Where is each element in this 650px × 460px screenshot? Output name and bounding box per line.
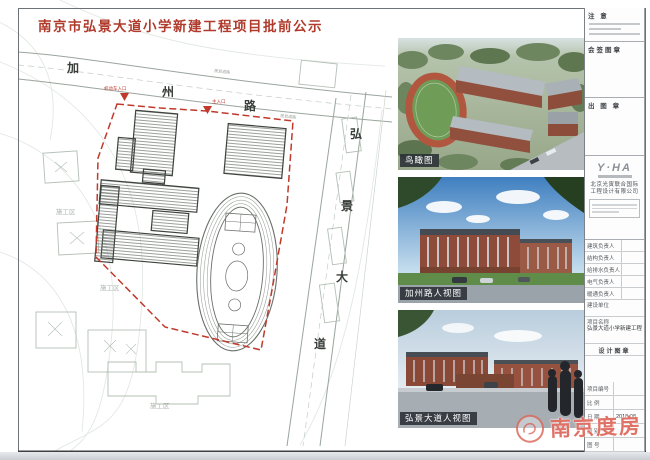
company-name-line2: 工程设计有限公司 (588, 189, 641, 196)
meta-row: 比 例 (585, 396, 644, 410)
project-value: 弘景大道小学新建工程 (587, 326, 642, 332)
meta-label: 项目编号 (585, 385, 613, 393)
placeholder-line (589, 33, 640, 35)
person-row-label: 结构负责人 (585, 254, 621, 262)
road-note-1: 规划道路 (214, 67, 231, 75)
svg-text:大: 大 (336, 269, 348, 284)
svg-text:施工区: 施工区 (56, 207, 76, 216)
person-row: 建筑负责人 (585, 240, 644, 252)
school-buildings (95, 110, 286, 266)
owner-row: 建设单位 (585, 300, 644, 317)
company-logo: Y·HA (588, 162, 641, 174)
person-row-label: 给排水负责人 (585, 266, 621, 274)
person-row-value (621, 276, 644, 287)
person-row: 结构负责人 (585, 252, 644, 264)
svg-text:施工区: 施工区 (150, 401, 170, 410)
svg-text:道: 道 (314, 336, 326, 351)
renderings-column: 鸟瞰图 (398, 38, 584, 435)
project-label: 项目名称 (587, 318, 642, 326)
design-stamp-header: 设计图章 (598, 349, 630, 355)
entrance-label-main: 主入口 (212, 98, 226, 105)
svg-text:加: 加 (66, 60, 79, 75)
person-row: 给排水负责人 (585, 264, 644, 276)
rendering-birdseye: 鸟瞰图 (398, 38, 584, 170)
announcement-sheet: 机动车入口 主入口 加 州 路 弘 景 大 道 规划道路 规划道路 施工区 施工… (0, 0, 650, 460)
placeholder-line (592, 204, 637, 206)
rendering-label-hongjing: 弘景大道人视图 (400, 412, 477, 425)
person-row: 电气负责人 (585, 276, 644, 288)
project-row: 项目名称 弘景大道小学新建工程 (585, 317, 644, 344)
rendering-label-jiazhou: 加州路人视图 (400, 287, 467, 300)
title-block-notes: 注 意 (585, 8, 644, 42)
person-row-value (621, 240, 644, 251)
svg-text:施工区: 施工区 (100, 283, 120, 292)
watermark-logo-icon (516, 414, 545, 443)
design-stamp-space (585, 356, 644, 382)
person-row: 暖通负责人 (585, 288, 644, 300)
svg-text:州: 州 (161, 85, 174, 99)
road-name-hongjing: 弘 景 大 道 (314, 127, 362, 351)
jiazhou-scene (398, 177, 584, 303)
title-block-sign-stamp: 会签图章 (585, 42, 644, 98)
road-hongjing (287, 90, 386, 446)
notes-header: 注 意 (588, 13, 609, 20)
company-logo-underline (598, 175, 632, 178)
person-row-label: 暖通负责人 (585, 290, 621, 298)
title-block: 注 意 会签图章 出 图 章 Y·HA 北京光寅联合国际 工程设计有限公司 建筑… (584, 8, 645, 452)
entrance-label-vehicle: 机动车入口 (104, 85, 127, 92)
person-row-label: 建筑负责人 (585, 242, 621, 250)
meta-row: 项目编号 (585, 382, 644, 396)
person-row-value (621, 288, 644, 299)
person-row-value (621, 252, 644, 263)
rendering-hongjing-view: 弘景大道人视图 (398, 310, 584, 428)
title-block-out-stamp: 出 图 章 (585, 98, 644, 156)
svg-text:弘: 弘 (350, 127, 362, 141)
title-block-company: Y·HA 北京光寅联合国际 工程设计有限公司 (585, 156, 644, 240)
placeholder-line (589, 23, 640, 25)
placeholder-line (589, 28, 621, 30)
rendering-jiazhou-view: 加州路人视图 (398, 177, 584, 303)
watermark: 南京度房 (516, 410, 643, 444)
title-block-persons: 建筑负责人 结构负责人 给排水负责人 电气负责人 暖通负责人 (585, 240, 644, 300)
hongjing-scene (398, 310, 584, 428)
birdseye-scene (398, 38, 584, 170)
rendering-label-birdseye: 鸟瞰图 (400, 154, 439, 167)
company-name-line1: 北京光寅联合国际 (588, 182, 641, 189)
svg-text:路: 路 (244, 98, 257, 113)
person-row-label: 电气负责人 (585, 278, 621, 286)
meta-label: 比 例 (585, 399, 613, 407)
meta-value (613, 396, 644, 409)
watermark-text: 南京度房 (549, 410, 642, 443)
certificate-box (589, 199, 640, 218)
running-track (192, 190, 283, 353)
out-stamp-header: 出 图 章 (588, 103, 621, 110)
page-edge (0, 452, 650, 460)
sign-stamp-header: 会签图章 (588, 47, 622, 54)
placeholder-line (592, 211, 619, 213)
context-buildings (36, 60, 361, 404)
page-title: 南京市弘景大道小学新建工程项目批前公示 (38, 15, 323, 35)
road-note-2: 规划道路 (280, 112, 297, 120)
design-stamp-header-row: 设计图章 (585, 344, 644, 356)
svg-text:景: 景 (341, 199, 353, 213)
meta-value (613, 382, 644, 395)
meta-label: 图 号 (585, 441, 613, 449)
owner-label: 建设单位 (587, 301, 642, 309)
person-row-value (621, 264, 644, 275)
placeholder-line (592, 208, 637, 210)
